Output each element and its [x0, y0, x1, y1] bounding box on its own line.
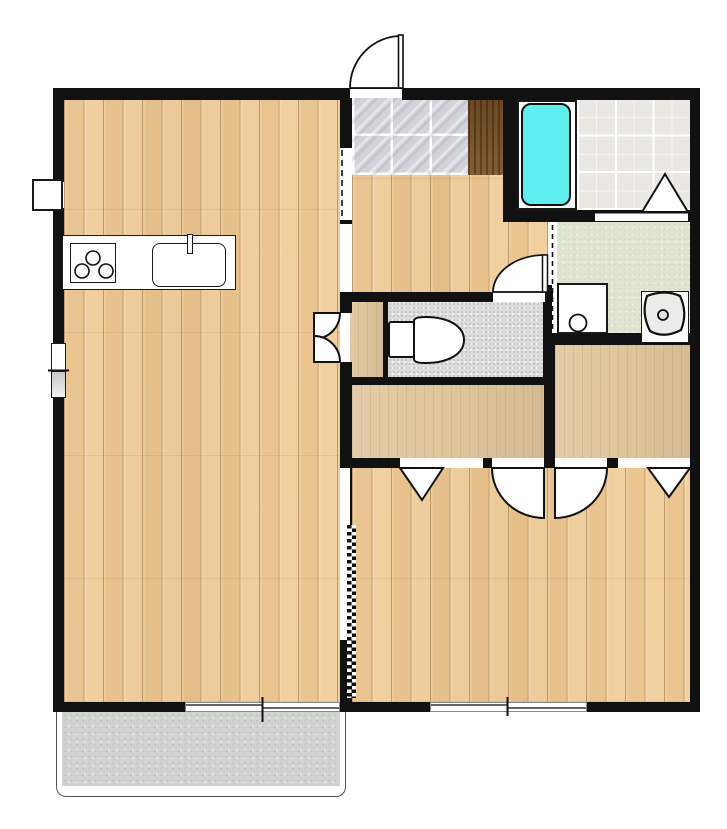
closet-opening-1	[400, 458, 483, 468]
wall-bedroom-north-4	[607, 458, 618, 468]
left-wall-window-upper	[51, 343, 66, 371]
wall-bottom	[53, 702, 700, 712]
washing-machine	[557, 283, 608, 334]
bathtub	[521, 103, 571, 206]
wall-bedroom-north-3	[544, 458, 555, 468]
entry-threshold	[350, 88, 402, 98]
ldk-hall-passage	[340, 224, 352, 292]
wall-entry-bath	[503, 88, 517, 222]
side-closet	[349, 302, 383, 377]
balcony-outline	[56, 712, 346, 797]
room-living-dining-kitchen	[64, 100, 340, 702]
entry-step	[468, 97, 503, 175]
living-window-base	[185, 702, 340, 712]
room-toilet	[388, 302, 543, 377]
side-closet-threshold	[340, 313, 350, 362]
closet-opening-4	[618, 458, 690, 468]
room-bathroom-tiles	[577, 100, 690, 210]
closet-right	[555, 345, 690, 458]
washbasin-vanity	[641, 291, 689, 343]
wall-toilet-bottom	[340, 377, 553, 385]
entry-swing-door-leaf	[399, 35, 404, 88]
room-bedroom	[352, 468, 690, 702]
entry-swing-door-arc	[350, 36, 401, 88]
meter-box	[32, 179, 63, 211]
toilet-threshold	[493, 292, 545, 302]
stove	[70, 243, 116, 283]
bedroom-window-base	[430, 702, 587, 712]
faucet	[187, 234, 193, 254]
wall-bedroom-north-1	[352, 458, 400, 468]
closet-opening-3	[555, 458, 607, 468]
room-entry-genkan	[352, 97, 468, 175]
closet-left	[352, 383, 544, 458]
kitchen-hall-dashed-opening	[340, 148, 352, 220]
wall-top-right	[402, 88, 700, 100]
wall-bedroom-north-2	[483, 458, 492, 468]
floor-plan-canvas	[0, 0, 727, 829]
accordion-partition	[347, 525, 356, 698]
bathroom-threshold	[595, 213, 688, 221]
closet-opening-2	[492, 458, 544, 468]
left-wall-window-lower	[51, 371, 66, 398]
wall-closet-divider	[544, 345, 555, 468]
wall-side-closet-divider	[383, 302, 388, 377]
balcony-floor	[62, 712, 340, 786]
wall-top-left	[53, 88, 350, 100]
wall-right	[690, 88, 700, 712]
partition-track-line	[350, 468, 352, 525]
